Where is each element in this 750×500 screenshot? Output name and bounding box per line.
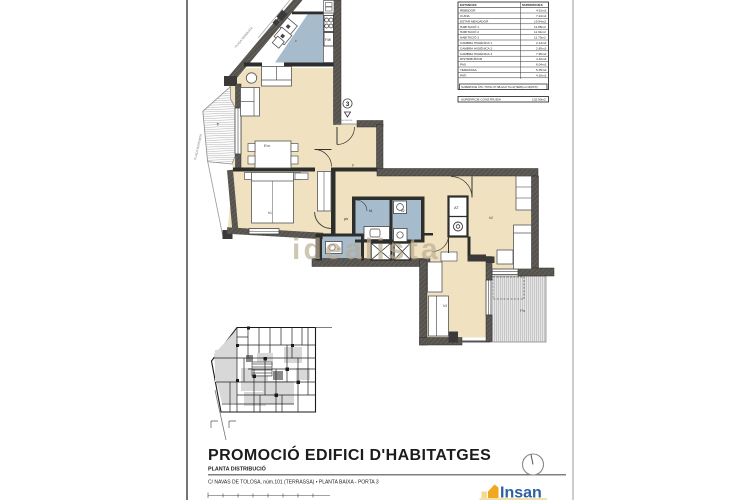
svg-text:4.16m2: 4.16m2 <box>536 73 547 77</box>
svg-text:4.91m2: 4.91m2 <box>536 9 547 13</box>
svg-text:CAMBRA HIGIÈNICA 2: CAMBRA HIGIÈNICA 2 <box>460 45 492 50</box>
svg-text:PATI: PATI <box>460 73 467 77</box>
svg-text:SUPERFICIE ÚTIL TOTAL 87.98m2: SUPERFICIE ÚTIL TOTAL 87.98m2+6.71m2(TER… <box>461 85 538 89</box>
svg-text:T: T <box>217 122 220 127</box>
svg-text:HABITACIÓ 2: HABITACIÓ 2 <box>460 29 479 34</box>
svg-text:ESTANCES: ESTANCES <box>460 3 477 7</box>
svg-text:2.85m2: 2.85m2 <box>536 46 547 50</box>
svg-text:h2: h2 <box>489 216 493 220</box>
svg-text:pb: pb <box>344 217 348 221</box>
svg-text:h1: h1 <box>268 211 272 215</box>
svg-text:4.10m2: 4.10m2 <box>536 57 547 61</box>
svg-text:2.14m2: 2.14m2 <box>536 41 547 45</box>
svg-text:F/W: F/W <box>325 38 331 42</box>
svg-text:Pa: Pa <box>520 308 526 313</box>
svg-text:HABITACIÓ 3: HABITACIÓ 3 <box>460 35 479 40</box>
svg-text:C/ NAVAS DE TOLOSA, núm.101 (T: C/ NAVAS DE TOLOSA, núm.101 (TERRASSA) •… <box>208 480 379 486</box>
svg-text:b1: b1 <box>369 209 373 213</box>
svg-text:DISTRIBUÏDOR: DISTRIBUÏDOR <box>460 57 483 61</box>
svg-text:PLAÇA SERENATA: PLAÇA SERENATA <box>193 134 203 160</box>
svg-text:3: 3 <box>346 101 350 108</box>
svg-text:TERRASSA: TERRASSA <box>460 68 478 72</box>
svg-text:SUPERFICIE CONSTRUÏDA: SUPERFICIE CONSTRUÏDA <box>461 98 502 102</box>
svg-text:h3: h3 <box>443 304 447 308</box>
svg-text:Insan: Insan <box>500 485 542 500</box>
svg-text:b2: b2 <box>401 209 405 213</box>
svg-text:7.24m2: 7.24m2 <box>536 14 547 18</box>
svg-text:102.90m2: 102.90m2 <box>532 98 546 102</box>
svg-text:11.73m2: 11.73m2 <box>534 36 546 40</box>
svg-text:PLAÇA SERENATA: PLAÇA SERENATA <box>234 26 254 49</box>
svg-text:19.94m2: 19.94m2 <box>534 19 546 23</box>
svg-text:11.85m2: 11.85m2 <box>534 25 546 29</box>
svg-text:AT: AT <box>454 205 459 210</box>
svg-text:7.95m2: 7.95m2 <box>536 52 547 56</box>
svg-text:p: p <box>352 163 354 167</box>
svg-text:300.200.200: 300.200.200 <box>340 120 353 122</box>
svg-text:REBEDOR: REBEDOR <box>460 9 476 13</box>
svg-text:CAMBRA HIGIÈNICA 1: CAMBRA HIGIÈNICA 1 <box>460 40 492 45</box>
svg-text:5.35m2: 5.35m2 <box>536 68 547 72</box>
svg-text:PLANTA DISTRIBUCIÓ: PLANTA DISTRIBUCIÓ <box>208 465 266 473</box>
svg-text:11.91m2: 11.91m2 <box>534 30 546 34</box>
svg-text:CUINA: CUINA <box>460 14 471 18</box>
svg-text:PAS: PAS <box>460 63 466 67</box>
svg-text:idealista: idealista <box>292 233 441 266</box>
svg-text:6.04m2: 6.04m2 <box>536 63 547 67</box>
svg-text:c: c <box>295 39 297 43</box>
svg-text:HABITACIÓ 1: HABITACIÓ 1 <box>460 24 479 29</box>
svg-text:Em: Em <box>264 143 271 148</box>
svg-text:ESTAR MENJADOR: ESTAR MENJADOR <box>460 19 489 23</box>
svg-text:CAMBRA HIGIÈNICA 3: CAMBRA HIGIÈNICA 3 <box>460 51 492 56</box>
svg-text:SUPERFICIES: SUPERFICIES <box>522 3 543 7</box>
svg-text:PROMOCIÓ EDIFICI D'HABITATGES: PROMOCIÓ EDIFICI D'HABITATGES <box>208 445 491 464</box>
